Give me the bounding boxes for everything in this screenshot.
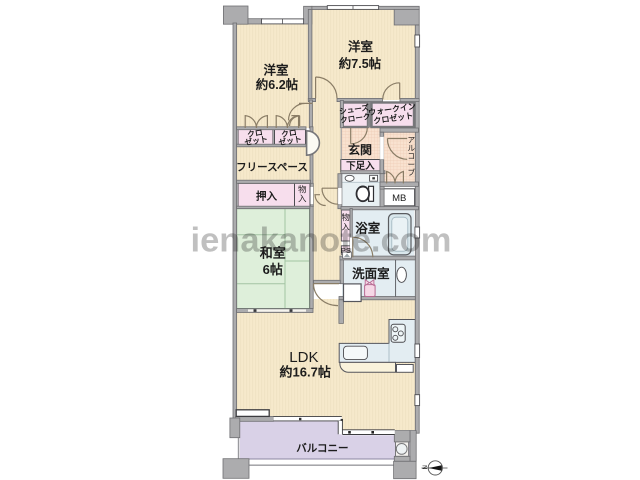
svg-text:物: 物: [342, 212, 350, 222]
svg-text:LDK: LDK: [289, 349, 318, 366]
svg-text:約7.5帖: 約7.5帖: [339, 56, 382, 71]
svg-text:バルコニー: バルコニー: [296, 443, 348, 455]
svg-text:約16.7帖: 約16.7帖: [280, 364, 331, 379]
svg-text:入: 入: [298, 194, 307, 204]
svg-text:約6.2帖: 約6.2帖: [256, 77, 299, 92]
svg-text:押入: 押入: [256, 190, 277, 203]
svg-text:洋室: 洋室: [263, 63, 289, 78]
svg-text:下足入: 下足入: [346, 161, 375, 172]
svg-text:ブ: ブ: [408, 167, 416, 177]
svg-text:洋室: 洋室: [348, 39, 374, 54]
svg-text:N: N: [423, 465, 429, 469]
svg-text:ienakanote.com: ienakanote.com: [191, 222, 452, 260]
svg-text:MB: MB: [392, 193, 406, 204]
svg-text:玄関: 玄関: [348, 142, 372, 157]
svg-text:フリースペース: フリースペース: [236, 162, 308, 174]
svg-text:6帖: 6帖: [263, 262, 283, 277]
svg-text:洗面室: 洗面室: [352, 266, 390, 281]
